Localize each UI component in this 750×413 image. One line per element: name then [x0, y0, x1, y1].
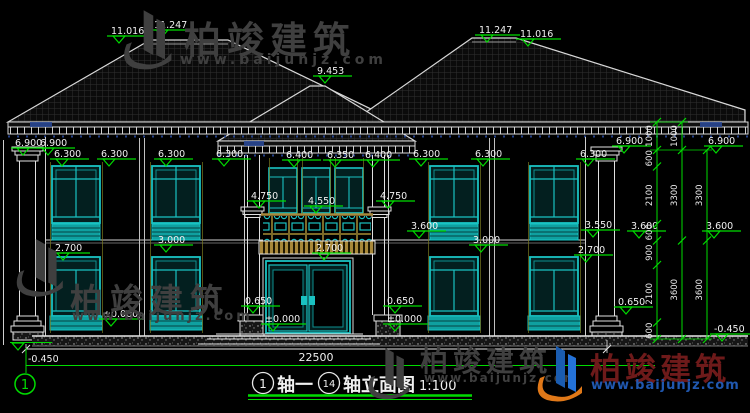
dim-chain-label: 3600 [670, 279, 680, 301]
sill-band [428, 316, 480, 330]
level-triangle [415, 159, 427, 166]
gutter-accent [700, 122, 722, 127]
level-triangle [413, 231, 425, 238]
title-axis-start: 轴一 [277, 374, 313, 396]
level-triangle [389, 306, 401, 313]
level-triangle [633, 231, 645, 238]
window-column [528, 166, 580, 330]
level-triangle [218, 159, 230, 166]
elevation-mark-label: 6.300 [101, 149, 128, 160]
ground-line [32, 336, 748, 346]
roof-right [352, 38, 745, 122]
door-handle [301, 296, 307, 305]
dim-chain-label: 2100 [645, 283, 655, 305]
elevation-mark-label: 6.900 [616, 136, 643, 147]
elevation-mark: 6.900 [704, 136, 743, 153]
elevation-mark-label: 6.300 [413, 149, 440, 160]
elevation-mark-label: 2.700 [55, 243, 82, 254]
elevation-mark-label: 4.750 [251, 191, 278, 202]
elevation-mark-label: 6.400 [365, 150, 392, 161]
elevation-mark-label: 3.600 [411, 221, 438, 232]
dim-chain-label: 1000 [645, 125, 655, 147]
dim-chain-label: 3600 [695, 279, 705, 301]
elevation-mark-label: -0.450 [714, 324, 745, 335]
elevation-mark-label: ±0.000 [265, 314, 300, 325]
level-triangle [160, 159, 172, 166]
downspout-left [140, 138, 145, 336]
level-triangle [710, 146, 722, 153]
elevation-mark: 3.000 [469, 235, 508, 252]
elevation-mark-label: 6.900 [15, 138, 42, 149]
dim-chain-label: 600 [645, 323, 655, 339]
sill-band [150, 316, 202, 330]
elevation-mark-label: 2.700 [578, 245, 605, 256]
balcony-railing [261, 215, 373, 242]
door-handle [309, 296, 315, 305]
elevation-mark-label: 11.016 [111, 26, 144, 37]
sill-band [528, 316, 580, 330]
total-width-label: 22500 [299, 351, 334, 364]
elevation-mark: 6.300 [154, 149, 193, 166]
level-triangle [42, 148, 54, 155]
elevation-mark: 9.453 [313, 66, 352, 83]
elevation-mark-label: 6.300 [54, 149, 81, 160]
window-column [150, 166, 202, 330]
dimension-chain: 100033003600 [670, 118, 686, 343]
level-triangle [105, 319, 117, 326]
elevation-mark-label: 6.350 [327, 150, 354, 161]
elevation-mark: 11.247 [150, 20, 195, 37]
elevation-mark-label: 6.300 [475, 149, 502, 160]
elevation-drawing-canvas: 11.01611.24711.24711.0169.4536.9006.9006… [0, 0, 750, 413]
dim-chain-label: 2100 [645, 184, 655, 206]
elevation-mark: 11.016 [107, 26, 152, 43]
elevation-mark-label: 4.550 [308, 196, 335, 207]
level-triangle [319, 76, 331, 83]
dim-chain-label: 3300 [670, 184, 680, 206]
level-triangle [247, 306, 259, 313]
spandrel-panel [530, 224, 578, 240]
level-triangle [103, 159, 115, 166]
elevation-mark: 6.300 [576, 149, 615, 166]
title-axis-end: 轴立面图 [343, 374, 415, 396]
level-triangle [477, 159, 489, 166]
elevation-mark: 4.750 [376, 191, 415, 208]
dimension-chain: 33003600 [695, 146, 711, 343]
level-triangle [288, 160, 300, 167]
gutter-accent [30, 122, 52, 127]
elevation-mark: 3.600 [702, 221, 741, 238]
level-triangle [160, 245, 172, 252]
elevation-mark-label: ±0.000 [387, 314, 422, 325]
elevation-mark-label: 3.000 [158, 235, 185, 246]
title-axis-end-no: 14 [323, 379, 336, 390]
drawing-title: 1 轴一 14 轴立面图 1:100 [248, 373, 472, 400]
cad-elevation-svg: 11.01611.24711.24711.0169.4536.9006.9006… [0, 0, 750, 413]
elevation-mark: 6.300 [50, 149, 89, 166]
porch-column-left [11, 147, 44, 340]
level-triangle [156, 30, 168, 37]
elevation-mark-label: -0.450 [28, 354, 59, 365]
axis-bubble-label: 1 [21, 378, 29, 393]
gutter-accent [244, 141, 264, 146]
level-triangle [582, 159, 594, 166]
level-triangle [620, 307, 632, 314]
dim-chain-label: 1000 [670, 125, 680, 147]
dim-chain-label: 600 [645, 150, 655, 166]
elevation-mark: 2.700 [574, 245, 613, 262]
elevation-mark-label: 0.650 [245, 296, 272, 307]
level-triangle [587, 230, 599, 237]
elevation-mark: 6.300 [471, 149, 510, 166]
elevation-mark-label: 11.016 [520, 29, 553, 40]
level-triangle [113, 36, 125, 43]
main-eave-fascia [8, 122, 748, 137]
elevation-mark-label: 0.650 [387, 296, 414, 307]
window-column [428, 166, 480, 330]
elevation-mark-label: 6.900 [708, 136, 735, 147]
elevation-mark-label: 6.300 [580, 149, 607, 160]
elevation-mark-label: 3.000 [473, 235, 500, 246]
elevation-mark-label: 6.300 [216, 149, 243, 160]
elevation-mark-label: ±0.000 [103, 309, 138, 320]
dim-chain-label: 3300 [695, 184, 705, 206]
elevation-mark-label: 3.600 [706, 221, 733, 232]
sill-band [50, 316, 102, 330]
elevation-mark-label: 6.900 [40, 138, 67, 149]
elevation-mark-label: 11.247 [154, 20, 187, 31]
spandrel-panel [52, 224, 100, 240]
elevation-mark-label: 3.550 [585, 220, 612, 231]
dim-chain-label: 900 [645, 245, 655, 261]
elevation-mark-label: 0.650 [618, 297, 645, 308]
elevation-mark: ±0.000 [99, 309, 144, 326]
elevation-mark-label: 11.247 [479, 25, 512, 36]
porch-column-right [590, 147, 623, 340]
elevation-mark-label: 6.400 [286, 150, 313, 161]
elevation-mark-label: 6.300 [158, 149, 185, 160]
elevation-mark-label: 2.700 [316, 243, 343, 254]
level-triangle [56, 159, 68, 166]
elevation-mark-label: 9.453 [317, 66, 344, 77]
level-triangle [475, 245, 487, 252]
title-scale: 1:100 [419, 379, 456, 394]
dim-chain-label: 600 [645, 224, 655, 240]
elevation-mark-label: 4.750 [380, 191, 407, 202]
title-axis-start-no: 1 [259, 377, 267, 391]
